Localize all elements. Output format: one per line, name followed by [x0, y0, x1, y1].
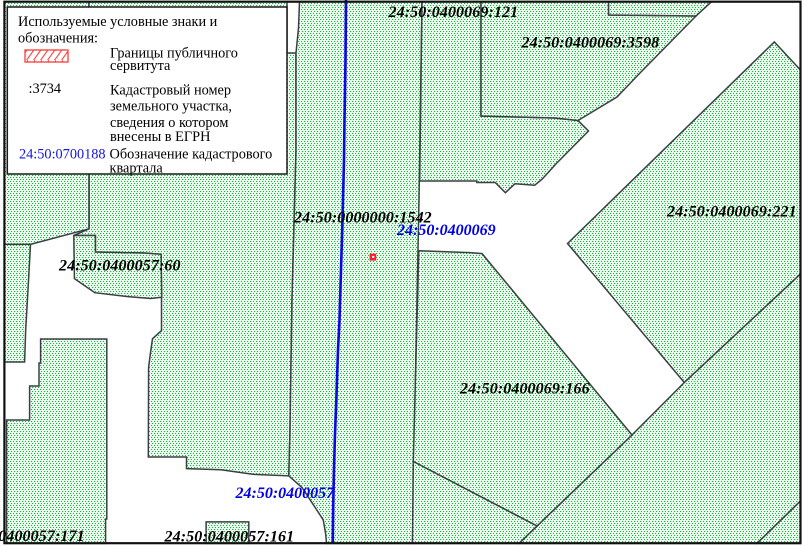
svg-text:внесены в ЕГРН: внесены в ЕГРН [110, 129, 210, 145]
svg-text:сервитута: сервитута [110, 58, 171, 74]
svg-text:24:50:0400057:60: 24:50:0400057:60 [58, 258, 181, 275]
svg-text:земельного участка,: земельного участка, [110, 99, 232, 115]
svg-text:обозначения:: обозначения: [18, 31, 98, 47]
svg-text:24:50:0400057:171: 24:50:0400057:171 [0, 528, 85, 545]
svg-text:24:50:0400069:166: 24:50:0400069:166 [459, 381, 590, 398]
svg-text:24:50:0400069:221: 24:50:0400069:221 [666, 204, 797, 221]
svg-text:24:50:0400057: 24:50:0400057 [235, 485, 336, 502]
svg-text::3734: :3734 [29, 81, 62, 97]
svg-text:24:50:0400069:3598: 24:50:0400069:3598 [521, 35, 660, 52]
svg-text:Кадастровый номер: Кадастровый номер [110, 83, 231, 99]
svg-text:24:50:0700188: 24:50:0700188 [19, 147, 106, 163]
svg-text:24:50:0400069: 24:50:0400069 [396, 222, 496, 239]
svg-text:квартала: квартала [110, 161, 164, 177]
svg-text:Используемые условные знаки и: Используемые условные знаки и [18, 14, 218, 30]
svg-text:24:50:0400057:161: 24:50:0400057:161 [164, 529, 295, 546]
svg-text:24:50:0400069:121: 24:50:0400069:121 [388, 4, 519, 21]
